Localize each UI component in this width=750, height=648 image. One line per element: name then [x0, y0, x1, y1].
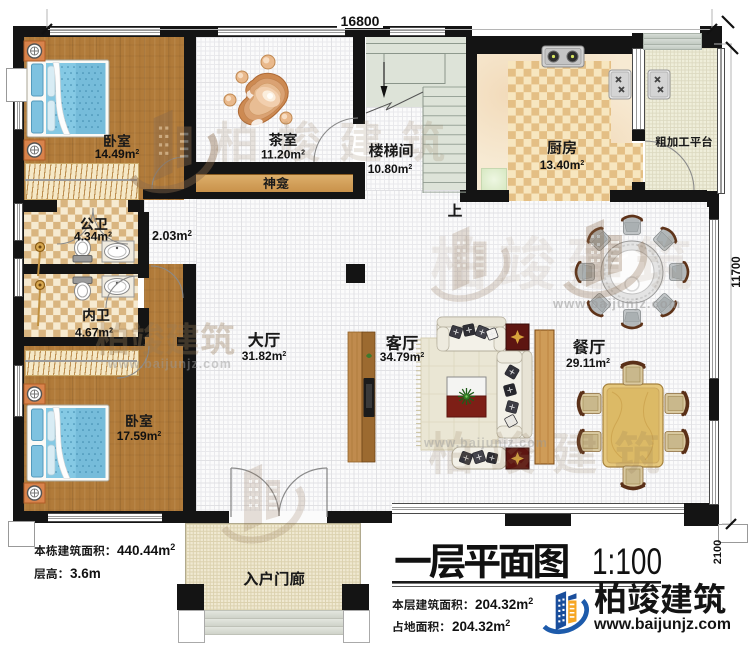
- svg-text:17.59m2: 17.59m2: [117, 429, 162, 443]
- svg-text:14.49m2: 14.49m2: [95, 147, 140, 161]
- svg-text:www.baijunjz.com: www.baijunjz.com: [423, 436, 548, 450]
- svg-text:10.80m2: 10.80m2: [368, 162, 413, 176]
- svg-text:1:100: 1:100: [592, 541, 662, 582]
- svg-text:34.79m2: 34.79m2: [380, 350, 425, 364]
- svg-text:www.baijunjz.com: www.baijunjz.com: [552, 296, 681, 311]
- svg-text:2.03m2: 2.03m2: [152, 229, 192, 243]
- svg-text:www.baijunjz.com: www.baijunjz.com: [107, 357, 232, 371]
- svg-text:16800: 16800: [341, 13, 380, 29]
- svg-text:2100: 2100: [712, 540, 724, 564]
- svg-text:4.67m2: 4.67m2: [75, 326, 113, 340]
- svg-text:31.82m2: 31.82m2: [242, 349, 287, 363]
- svg-text:440.44m2: 440.44m2: [117, 542, 175, 558]
- svg-text:4.34m2: 4.34m2: [74, 230, 112, 244]
- svg-text:11700: 11700: [731, 256, 743, 287]
- svg-text:3.6m: 3.6m: [70, 566, 101, 581]
- svg-text:11.20m2: 11.20m2: [261, 148, 305, 162]
- svg-text:13.40m2: 13.40m2: [540, 158, 585, 172]
- svg-text:www.baijunjz.com: www.baijunjz.com: [593, 616, 731, 633]
- svg-text:29.11m2: 29.11m2: [566, 356, 610, 370]
- svg-text:204.32m2: 204.32m2: [475, 596, 533, 612]
- svg-text:204.32m2: 204.32m2: [452, 618, 510, 634]
